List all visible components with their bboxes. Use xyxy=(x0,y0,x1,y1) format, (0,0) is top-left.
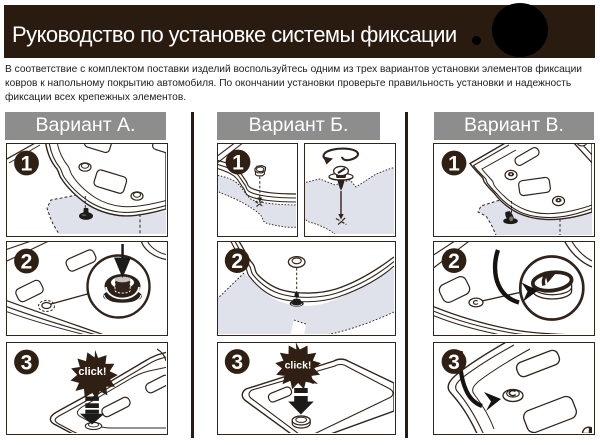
svg-text:1: 1 xyxy=(232,152,244,175)
svg-text:click!: click! xyxy=(285,359,312,371)
svg-text:2: 2 xyxy=(232,250,244,273)
svg-text:2: 2 xyxy=(20,251,32,274)
svg-text:3: 3 xyxy=(232,351,244,374)
svg-text:3: 3 xyxy=(20,351,32,374)
svg-text:2: 2 xyxy=(448,250,460,273)
svg-text:click!: click! xyxy=(78,366,106,378)
svg-text:1: 1 xyxy=(448,152,460,175)
svg-text:1: 1 xyxy=(20,153,32,176)
svg-text:3: 3 xyxy=(448,351,460,374)
